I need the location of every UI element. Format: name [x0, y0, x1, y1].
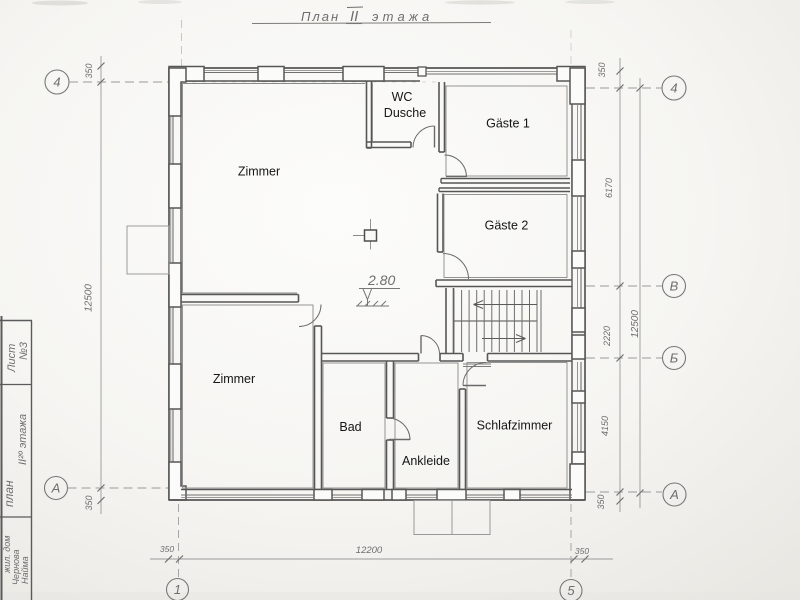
svg-text:А: А — [669, 487, 679, 502]
svg-text:12500: 12500 — [84, 284, 95, 312]
svg-text:350: 350 — [597, 62, 607, 77]
svg-text:350: 350 — [596, 494, 606, 509]
svg-text:Б: Б — [670, 351, 679, 366]
svg-text:Найма: Найма — [20, 556, 30, 584]
svg-text:Zimmer: Zimmer — [213, 372, 255, 386]
svg-text:Zimmer: Zimmer — [238, 165, 280, 179]
svg-text:2220: 2220 — [602, 326, 612, 347]
svg-text:4: 4 — [53, 75, 60, 90]
svg-text:350: 350 — [84, 495, 94, 510]
svg-text:А: А — [51, 481, 61, 496]
svg-text:этажа: этажа — [372, 9, 433, 24]
svg-text:В: В — [670, 279, 679, 294]
svg-text:4150: 4150 — [600, 416, 610, 436]
svg-text:Лист: Лист — [6, 344, 18, 373]
svg-text:Gäste 1: Gäste 1 — [486, 117, 530, 131]
svg-text:Schlafzimmer: Schlafzimmer — [477, 419, 553, 433]
svg-text:12500: 12500 — [630, 310, 641, 338]
svg-text:350: 350 — [84, 63, 94, 78]
svg-text:WC: WC — [392, 90, 413, 104]
svg-text:Dusche: Dusche — [384, 106, 426, 120]
svg-text:№3: №3 — [18, 341, 30, 360]
svg-text:план: план — [2, 480, 16, 507]
svg-text:Gäste 2: Gäste 2 — [485, 219, 529, 233]
svg-text:350: 350 — [575, 546, 589, 556]
svg-text:12200: 12200 — [356, 545, 383, 556]
svg-text:План: План — [301, 9, 340, 24]
svg-text:2.80: 2.80 — [367, 272, 395, 288]
svg-text:6170: 6170 — [604, 178, 614, 198]
svg-text:1: 1 — [174, 582, 181, 597]
svg-text:5: 5 — [567, 583, 575, 598]
svg-text:II: II — [350, 8, 358, 25]
svg-text:4: 4 — [670, 81, 677, 96]
svg-text:Ankleide: Ankleide — [402, 454, 450, 468]
svg-text:Bad: Bad — [339, 420, 361, 434]
svg-text:350: 350 — [160, 544, 174, 554]
svg-text:II²º этажа: II²º этажа — [17, 414, 29, 465]
